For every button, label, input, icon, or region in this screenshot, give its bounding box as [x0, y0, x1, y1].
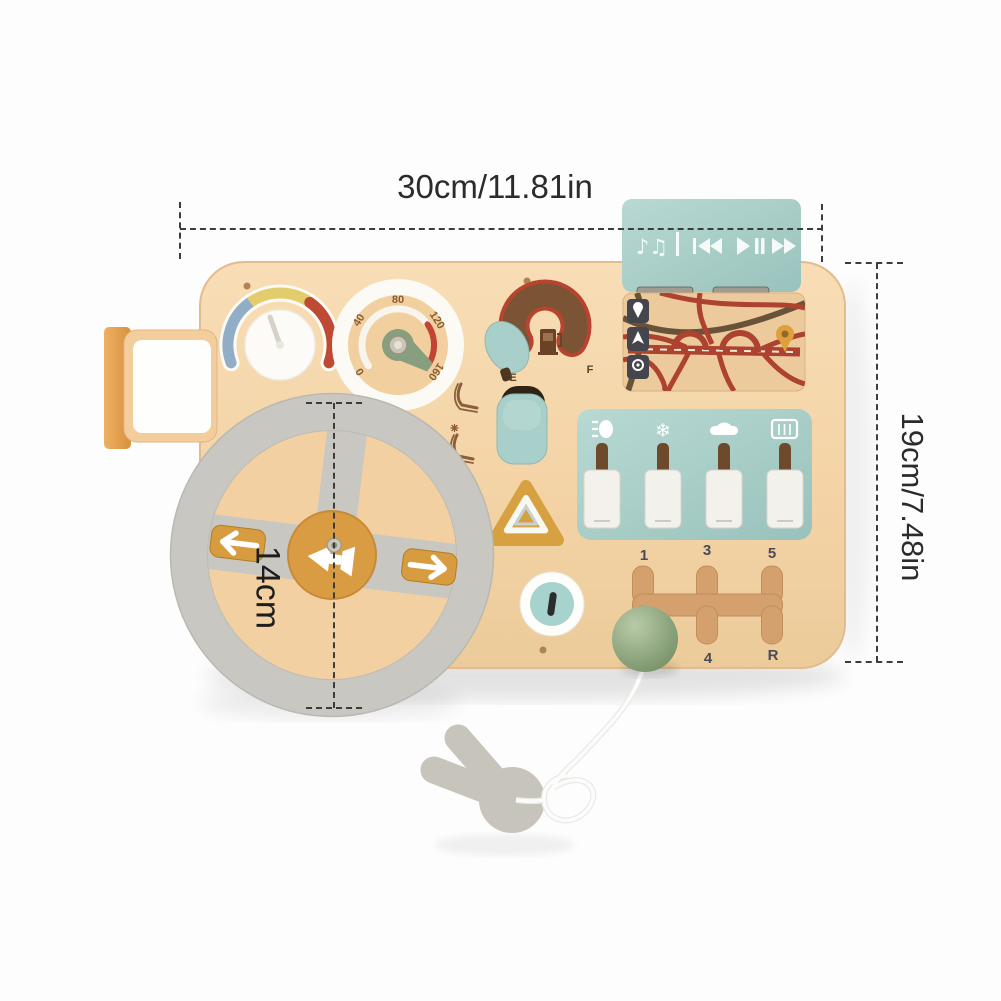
speedometer: 0 40 80 120 160 [332, 279, 464, 411]
music-notes-icon: ♪♫ [636, 235, 668, 259]
gear-label-5: 5 [768, 545, 776, 562]
wheel-dim-top-tick [306, 402, 362, 404]
wheel-dimension-label: 14cm [248, 488, 287, 688]
navigation-map [623, 293, 805, 391]
wheel-dimension-line [333, 403, 335, 708]
media-player-panel: ♪♫ [622, 199, 801, 292]
height-dim-bottom-tick [845, 661, 903, 663]
gear-knob [612, 606, 678, 672]
height-dimension-label: 19cm/7.48in [894, 347, 930, 647]
ignition-key [434, 738, 534, 822]
width-dimension-label: 30cm/11.81in [345, 168, 645, 206]
width-dim-left-tick [179, 202, 181, 259]
width-dimension-line [180, 228, 823, 230]
switch-panel: ❄ [577, 409, 812, 540]
speed-tick-80: 80 [392, 294, 404, 306]
gear-label-R: R [768, 647, 779, 664]
headlight-icon [592, 420, 613, 438]
gear-label-3: 3 [703, 542, 711, 559]
fuel-empty-label: E [509, 372, 516, 384]
busy-board-scene: 0 40 80 120 160 E F [0, 0, 1001, 1001]
key-shadow [435, 834, 575, 856]
screw-dot [540, 647, 547, 654]
width-dim-right-tick [821, 204, 823, 262]
gear-label-1: 1 [640, 547, 648, 564]
product-photo-stage: 0 40 80 120 160 E F [0, 0, 1001, 1001]
ignition-keyhole [520, 572, 584, 636]
separator-bar [676, 232, 679, 256]
seat-heater-slider [497, 386, 547, 464]
mirror-glass [133, 340, 211, 433]
right-arrow-button [401, 548, 458, 586]
map-icon-column [627, 299, 649, 379]
height-dim-top-tick [845, 262, 903, 264]
fuel-full-label: F [587, 364, 594, 376]
gear-label-4: 4 [704, 650, 713, 667]
screw-dot [244, 283, 251, 290]
rearview-mirror [104, 327, 217, 449]
height-dimension-line [876, 263, 878, 662]
snowflake-icon: ❄ [655, 420, 671, 442]
wheel-dim-bottom-tick [306, 707, 362, 709]
